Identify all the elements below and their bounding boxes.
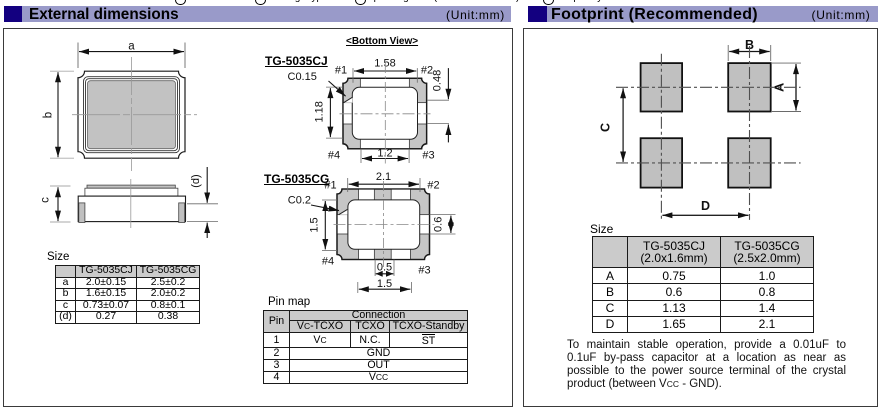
svg-text:C0.15: C0.15 — [288, 71, 317, 83]
svg-text:#2: #2 — [427, 180, 439, 192]
svg-text:c: c — [40, 197, 52, 203]
svg-text:1.5: 1.5 — [377, 278, 392, 290]
svg-text:1.18: 1.18 — [314, 101, 326, 122]
svg-text:C: C — [599, 123, 613, 132]
svg-text:#3: #3 — [418, 265, 430, 277]
svg-text:0.48: 0.48 — [432, 70, 444, 91]
svg-text:0.5: 0.5 — [377, 261, 392, 273]
svg-text:b: b — [43, 112, 55, 118]
svg-text:#1: #1 — [335, 65, 347, 77]
svg-text:#4: #4 — [322, 256, 334, 268]
svg-text:(d): (d) — [190, 174, 202, 187]
svg-text:C0.2: C0.2 — [288, 194, 311, 206]
svg-text:#3: #3 — [422, 150, 434, 162]
svg-text:D: D — [701, 199, 710, 213]
svg-text:a: a — [128, 41, 135, 53]
svg-text:#4: #4 — [328, 150, 340, 162]
svg-text:1.5: 1.5 — [309, 217, 321, 232]
svg-text:#2: #2 — [421, 65, 433, 77]
